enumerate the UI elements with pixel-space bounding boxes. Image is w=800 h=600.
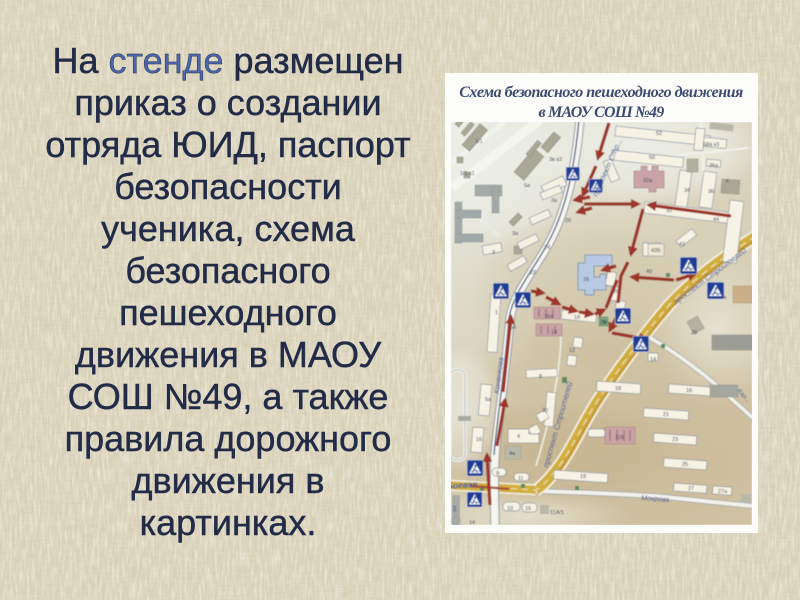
- svg-text:16: 16: [525, 506, 531, 512]
- svg-text:22: 22: [530, 270, 536, 276]
- svg-text:14: 14: [551, 330, 557, 336]
- svg-text:34: 34: [684, 188, 690, 194]
- svg-text:Боевая: Боевая: [446, 479, 477, 491]
- svg-text:32а: 32а: [643, 178, 653, 184]
- svg-text:1/1 к1: 1/1 к1: [460, 171, 475, 177]
- svg-text:11: 11: [518, 476, 524, 482]
- svg-text:27а: 27а: [718, 489, 728, 495]
- svg-text:16: 16: [686, 388, 692, 394]
- svg-text:16: 16: [583, 277, 589, 283]
- svg-text:24: 24: [544, 245, 550, 251]
- svg-text:1/1: 1/1: [475, 139, 483, 145]
- svg-text:25: 25: [682, 462, 688, 468]
- svg-text:16а: 16а: [544, 314, 554, 320]
- svg-text:26: 26: [691, 330, 697, 336]
- svg-text:26: 26: [565, 218, 571, 224]
- svg-text:16: 16: [476, 437, 482, 443]
- svg-text:14: 14: [650, 357, 656, 363]
- svg-text:36а: 36а: [709, 163, 719, 169]
- svg-text:1: 1: [495, 310, 498, 316]
- svg-text:4: 4: [517, 434, 520, 440]
- svg-text:5а: 5а: [485, 397, 492, 403]
- svg-text:4а: 4а: [509, 451, 516, 457]
- svg-text:3а: 3а: [551, 198, 558, 204]
- svg-text:3в к3: 3в к3: [549, 157, 562, 163]
- svg-text:12: 12: [569, 348, 575, 354]
- svg-text:23: 23: [672, 437, 678, 443]
- svg-text:8: 8: [539, 374, 542, 380]
- svg-text:52: 52: [656, 131, 662, 137]
- svg-text:18: 18: [574, 315, 580, 321]
- svg-text:25: 25: [600, 320, 606, 326]
- svg-text:9: 9: [496, 471, 499, 477]
- svg-text:11Б: 11Б: [615, 435, 625, 441]
- svg-text:36: 36: [708, 189, 714, 195]
- svg-text:11А/1: 11А/1: [550, 510, 564, 516]
- svg-text:50: 50: [649, 155, 655, 161]
- svg-text:40: 40: [646, 269, 652, 275]
- svg-text:27: 27: [688, 486, 694, 492]
- svg-text:5а: 5а: [524, 183, 531, 189]
- svg-text:44: 44: [713, 217, 719, 223]
- svg-text:3а: 3а: [512, 231, 519, 237]
- svg-text:ая: ая: [452, 505, 458, 513]
- svg-text:3: 3: [492, 250, 495, 256]
- svg-text:21: 21: [663, 412, 669, 418]
- svg-text:в МАОУ СОШ №49: в МАОУ СОШ №49: [539, 104, 665, 121]
- svg-text:10: 10: [507, 506, 513, 512]
- svg-text:30: 30: [542, 408, 548, 414]
- svg-text:43Б: 43Б: [651, 248, 661, 254]
- svg-text:42: 42: [679, 242, 685, 248]
- svg-text:19: 19: [580, 474, 586, 480]
- svg-text:58а к3: 58а к3: [703, 142, 719, 148]
- svg-text:Схема безопасного пешеходного: Схема безопасного пешеходного движения: [459, 84, 743, 101]
- svg-text:18: 18: [615, 386, 621, 392]
